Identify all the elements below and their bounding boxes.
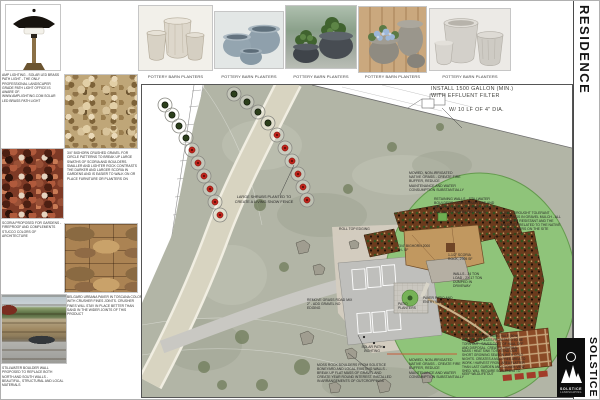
path-light-note: AMP LIGHTING - SOLAR LED BRASS PATH LIGH… — [2, 73, 61, 103]
annotation-wall-tons: WALLS - 34 TON LOAD - 2X 17 TON DUMPED I… — [453, 272, 487, 288]
dark-bowls-icon — [286, 6, 356, 68]
scoria-note: SCORIA PROPOSED FOR GARDENS - FIREPROOF … — [2, 221, 62, 238]
grey-pots-icon — [430, 9, 510, 70]
urbana-paver-note: BELGARD URBANA PAVER IN TOSCANA COLOR WI… — [67, 295, 143, 316]
annotation-septic: INSTALL 1500 GALLON (MIN.) WITH EFFLUENT… — [431, 86, 523, 100]
bighorn-gravel-note: 3/4" BIGHORN CRUSHED GRAVEL FOR CIRCLE P… — [67, 151, 139, 181]
landscape-plan-sheet: AMP LIGHTING - SOLAR LED BRASS PATH LIGH… — [0, 0, 600, 400]
annotation-scoria-area: 1-1/2" SCORIA ROCK, 2905 SF — [448, 253, 480, 261]
solstice-logo: SOLSTICE LANDSCAPING — [557, 338, 585, 397]
boulder-wall-photo — [1, 294, 67, 364]
planter-caption-3: POTTERY BARN PLANTERS — [285, 75, 357, 79]
annotation-snow-fence: LARGE SHRUBS PLANTED TO CREATE A LIVING … — [229, 195, 299, 204]
bighorn-gravel-swatch — [64, 74, 138, 149]
planter-photo-2 — [214, 11, 284, 69]
fluted-pots-icon — [139, 6, 212, 70]
blue-pots-icon — [215, 12, 283, 68]
annotation-bighorn-area: 3/4" BIGHORN 2000 +/- SF — [399, 244, 435, 252]
annotation-remove-grass: REMOVE GRASS ROAD MIX 2" - ADD GRAVEL NO… — [307, 298, 353, 310]
logo-sub: LANDSCAPING — [560, 391, 582, 394]
pine-trees-icon — [559, 349, 583, 387]
residence-title: RESIDENCE — [577, 5, 592, 105]
annotation-path-lighting: SOLAR PATH LIGHTING — [358, 345, 386, 353]
annotation-septic-dia: W/ 10 LF OF 4" DIA. — [449, 107, 529, 114]
solstice-vertical-title: SOLSTICE — [587, 337, 599, 397]
annotation-veggie-garden: VEGGIE GARDEN USING HALF (50%) CONCRETE … — [462, 335, 526, 377]
annotation-moss-rock: MOSS ROCK BOULDERS FROM SOLSTICE BONEYAR… — [317, 363, 393, 383]
annotation-paver-patio: PAVER PATIO AND ENTRY WALK — [423, 296, 461, 304]
annotation-mixed-plantings: MIXED, DROUGHT TOLERANT PLANTINGS IN GRA… — [501, 211, 561, 231]
annotation-retaining-walls: RETAINING WALLS - STILLWATER BOULDERS - … — [434, 197, 496, 214]
urbana-paver-swatch — [64, 223, 138, 293]
path-light-photo — [5, 4, 61, 71]
path-light-icon — [6, 5, 61, 71]
boulder-wall-note: STILLWATER BOULDER WALL PROPOSED TO REPL… — [2, 366, 64, 387]
planter-photo-4 — [358, 6, 427, 73]
planter-photo-5 — [429, 8, 511, 71]
planter-caption-2: POTTERY BARN PLANTERS — [214, 75, 284, 79]
planter-caption-5: POTTERY BARN PLANTERS — [429, 75, 511, 79]
annotation-native-grass-2: MOWED, NON-IRRIGATED NATIVE GRASS - CREA… — [409, 358, 464, 379]
planter-photo-1 — [138, 5, 213, 71]
planter-photo-3 — [285, 5, 357, 69]
planter-caption-1: POTTERY BARN PLANTERS — [138, 75, 213, 79]
flower-pots-icon — [359, 7, 426, 72]
annotation-native-grass: MOWED, NON-IRRIGATED NATIVE GRASS - CREA… — [409, 171, 464, 192]
scoria-swatch — [1, 148, 64, 219]
planter-caption-4: POTTERY BARN PLANTERS — [358, 75, 427, 79]
annotation-patio-planters: PATIO PLANTERS — [398, 302, 426, 310]
annotation-edging: ROLL TOP EDGING — [339, 227, 381, 231]
